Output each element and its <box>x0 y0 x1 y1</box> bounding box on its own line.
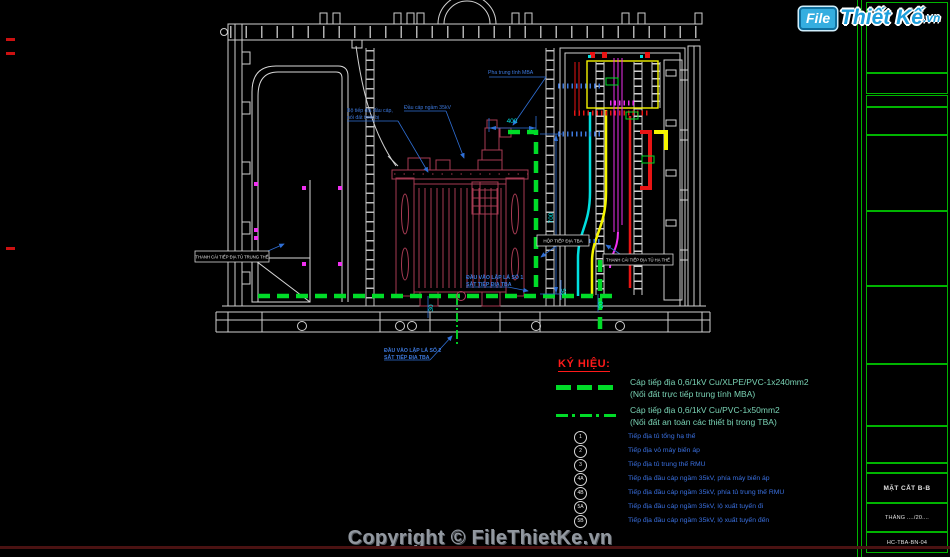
dim-20: 20 <box>598 301 605 309</box>
legend-item-label: Tiếp địa đầu cáp ngầm 35kV, lộ xuất tuyế… <box>628 517 769 524</box>
legend-item-key: 3 <box>574 459 587 472</box>
dim-25: 25 <box>561 288 568 296</box>
legend-dashdot-line-sample <box>556 414 616 417</box>
drawing-code-cell: HC-TBA-BN-04 <box>866 532 948 553</box>
enclosure-frame <box>216 0 710 332</box>
legend-item-label: Tiếp địa tủ trung thế RMU <box>628 461 706 468</box>
logo-domain-text: .vn <box>923 11 940 25</box>
title-block-cell <box>866 463 948 473</box>
title-block-cell <box>866 286 948 364</box>
drawing-date-cell: THÁNG ..../20.... <box>866 503 948 532</box>
callout-ground-set-1: Bộ tiếp địa đầu cáp, <box>347 108 393 114</box>
callout-inlet1-line1: ĐẦU VÀO LẬP LÁ SỐ 1 <box>466 274 523 281</box>
title-block-cell <box>866 426 948 463</box>
legend-item-label: Tiếp địa vỏ máy biến áp <box>628 447 700 454</box>
legend-item: 3 Tiếp địa tủ trung thế RMU <box>550 459 865 472</box>
legend-cable2-line2: (Nối đất an toàn các thiết bị trong TBA) <box>630 417 777 427</box>
label-ground-box: HỘP TIẾP ĐỊA TBA <box>543 238 582 244</box>
title-block-cell <box>866 107 948 135</box>
legend-title: KÝ HIỆU: <box>558 358 610 372</box>
legend-item: 2 Tiếp địa vỏ máy biến áp <box>550 445 865 458</box>
legend-item-label: Tiếp địa đầu cáp ngầm 35kV, lộ xuất tuyế… <box>628 503 763 510</box>
logo-brand-text: Thiết Kế <box>840 6 923 29</box>
rmu-cabinet <box>558 48 685 306</box>
folder-icon: File <box>799 7 837 30</box>
legend-item: 5A Tiếp địa đầu cáp ngầm 35kV, lộ xuất t… <box>550 501 865 514</box>
title-block-cell <box>866 95 948 107</box>
label-lv-busbar: THANH CÁI TIẾP ĐỊA TỦ HẠ THẾ <box>606 258 670 263</box>
leader-lines <box>268 77 620 360</box>
legend-item-key: 5A <box>574 501 587 514</box>
legend-item-key: 2 <box>574 445 587 458</box>
callout-ground-set-2: nối đất thiết bị <box>347 115 379 121</box>
edge-marks <box>6 38 15 250</box>
legend-item: 4B Tiếp địa đầu cáp ngầm 35kV, phía tủ t… <box>550 487 865 500</box>
callout-cable-head: Đầu cáp ngầm 35kV <box>404 105 452 111</box>
title-block-cell <box>866 211 948 286</box>
brand-logo: FileThiết Kế.vn <box>799 6 949 42</box>
callout-neutral: Pha trung tính MBA <box>488 70 534 76</box>
drawing-title-cell: MẶT CẮT B-B <box>866 473 948 503</box>
callout-inlet2-line1: ĐẦU VÀO LẬP LÁ SỐ 2 <box>384 347 441 354</box>
legend-item-key: 1 <box>574 431 587 444</box>
legend-item: 4A Tiếp địa đầu cáp ngầm 35kV, phía máy … <box>550 473 865 486</box>
callout-inlet2-line2: SẮT TIẾP ĐỊA TBA <box>384 353 430 361</box>
hv-drop-cable <box>352 40 398 166</box>
legend-item-label: Tiếp địa đầu cáp ngầm 35kV, phía tủ trun… <box>628 489 784 496</box>
bay-partitions <box>366 48 554 306</box>
legend-item-label: Tiếp địa tủ tổng hạ thế <box>628 433 695 440</box>
sheet-border-line <box>857 0 858 557</box>
legend: KÝ HIỆU: Cáp tiếp địa 0,6/1kV Cu/XLPE/PV… <box>550 358 865 548</box>
callout-inlet1-line2: SẮT TIẾP ĐỊA TBA <box>466 280 512 288</box>
legend-cable2-line1: Cáp tiếp địa 0,6/1kV Cu/PVC-1x50mm2 <box>630 405 780 415</box>
legend-item: 1 Tiếp địa tủ tổng hạ thế <box>550 431 865 444</box>
lv-cabinet <box>252 66 348 302</box>
bottom-divider <box>0 546 950 549</box>
sheet-border-line <box>861 0 862 557</box>
label-mv-busbar: THANH CÁI TIẾP ĐỊA TỦ TRUNG THẾ <box>196 255 269 260</box>
dim-700: 700 <box>548 212 555 223</box>
title-block-cell <box>866 364 948 426</box>
legend-dashed-line-sample <box>556 385 616 390</box>
dim-400: 400 <box>507 118 518 125</box>
legend-item-key: 4A <box>574 473 587 486</box>
title-block-cell <box>866 135 948 211</box>
legend-cable1-line2: (Nối đất trực tiếp trung tính MBA) <box>630 389 755 399</box>
title-block-cell <box>866 73 948 94</box>
legend-item-key: 4B <box>574 487 587 500</box>
dim-30: 30 <box>428 304 435 312</box>
legend-cable1-line1: Cáp tiếp địa 0,6/1kV Cu/XLPE/PVC-1x240mm… <box>630 377 809 387</box>
cad-canvas: Pha trung tính MBA Đầu cáp ngầm 35kV Bộ … <box>0 0 950 557</box>
legend-item-label: Tiếp địa đầu cáp ngầm 35kV, phía máy biế… <box>628 475 770 482</box>
